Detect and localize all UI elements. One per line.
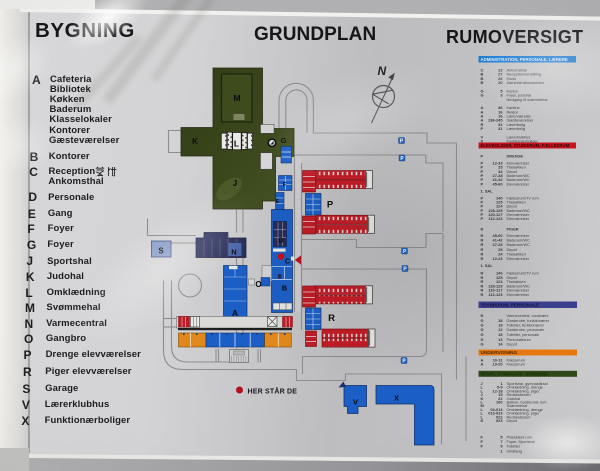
svg-text:R: R xyxy=(328,313,335,324)
svg-text:Elevværelser: Elevværelser xyxy=(507,292,530,297)
svg-text:ADMINISTRATION, PERSONALE, LÆR: ADMINISTRATION, PERSONALE, LÆRERE xyxy=(481,57,568,62)
svg-text:K: K xyxy=(192,137,198,146)
svg-text:P: P xyxy=(481,181,484,186)
svg-text:B: B xyxy=(481,80,484,85)
svg-text:G: G xyxy=(481,342,484,347)
svg-text:F: F xyxy=(283,183,287,189)
svg-text:V: V xyxy=(353,398,358,407)
svg-text:Vindfang: Vindfang xyxy=(507,448,522,453)
svg-text:PIGER: PIGER xyxy=(507,227,519,232)
svg-text:1. SAL: 1. SAL xyxy=(481,263,494,268)
svg-text:N: N xyxy=(231,248,236,257)
svg-text:100: 100 xyxy=(496,400,503,405)
svg-text:P: P xyxy=(481,154,484,159)
svg-text:F: F xyxy=(481,444,484,449)
svg-text:Nedgang til svømmehal: Nedgang til svømmehal xyxy=(507,97,548,102)
svg-text:Elevværelser: Elevværelser xyxy=(507,256,530,261)
svg-text:K: K xyxy=(481,418,484,423)
svg-text:HER STÅR DE: HER STÅR DE xyxy=(248,387,298,396)
svg-text:14: 14 xyxy=(498,342,503,347)
svg-text:TEKNIKRUM, PERSONALE: TEKNIKRUM, PERSONALE xyxy=(481,303,540,308)
svg-text:A: A xyxy=(232,308,238,318)
svg-text:023: 023 xyxy=(496,418,503,423)
svg-text:B: B xyxy=(282,284,288,293)
svg-text:P: P xyxy=(481,216,484,221)
svg-text:ELEVBOLIGER, STUDIERUM, FÆLLES: ELEVBOLIGER, STUDIERUM, FÆLLESRUM xyxy=(481,143,570,148)
svg-text:Depot: Depot xyxy=(507,342,518,347)
svg-text:UNDERVISNING: UNDERVISNING xyxy=(481,350,518,356)
svg-text:20: 20 xyxy=(498,80,502,85)
svg-text:P: P xyxy=(327,200,334,211)
svg-text:S: S xyxy=(158,247,164,256)
svg-text:D: D xyxy=(278,236,284,245)
svg-text:G: G xyxy=(481,93,484,98)
svg-text:3: 3 xyxy=(500,93,503,98)
svg-text:C: C xyxy=(285,257,291,266)
svg-text:L: L xyxy=(234,139,239,149)
svg-text:O: O xyxy=(255,280,261,289)
svg-text:SPORT, GYMNASTIK, SVØMNING: SPORT, GYMNASTIK, SVØMNING xyxy=(481,371,550,376)
svg-text:45-60: 45-60 xyxy=(493,181,503,186)
svg-text:R: R xyxy=(481,256,484,261)
svg-text:A: A xyxy=(481,362,484,367)
svg-text:31: 31 xyxy=(498,126,503,131)
svg-text:Lærerbolig: Lærerbolig xyxy=(507,126,526,131)
svg-text:P: P xyxy=(481,126,484,131)
svg-text:1. SAL: 1. SAL xyxy=(481,188,494,193)
svg-text:X: X xyxy=(394,394,399,403)
svg-text:Depot: Depot xyxy=(507,418,518,423)
svg-text:1: 1 xyxy=(500,448,503,453)
svg-text:N: N xyxy=(378,64,387,78)
svg-text:J: J xyxy=(233,179,237,188)
svg-text:M: M xyxy=(233,93,240,103)
svg-text:12-23: 12-23 xyxy=(493,256,504,261)
svg-text:Elevværelser: Elevværelser xyxy=(507,216,530,221)
svg-text:112-123: 112-123 xyxy=(488,216,503,221)
svg-text:Klasserum: Klasserum xyxy=(507,362,525,367)
svg-text:19-20: 19-20 xyxy=(493,362,503,367)
svg-text:DRENGE: DRENGE xyxy=(507,154,524,159)
svg-text:R: R xyxy=(481,292,484,297)
svg-text:Elevværelser: Elevværelser xyxy=(507,181,530,186)
svg-text:Administrationskontor: Administrationskontor xyxy=(507,80,545,85)
svg-text:R: R xyxy=(481,227,484,232)
svg-text:112-123: 112-123 xyxy=(488,292,503,297)
svg-text:G: G xyxy=(281,136,287,145)
